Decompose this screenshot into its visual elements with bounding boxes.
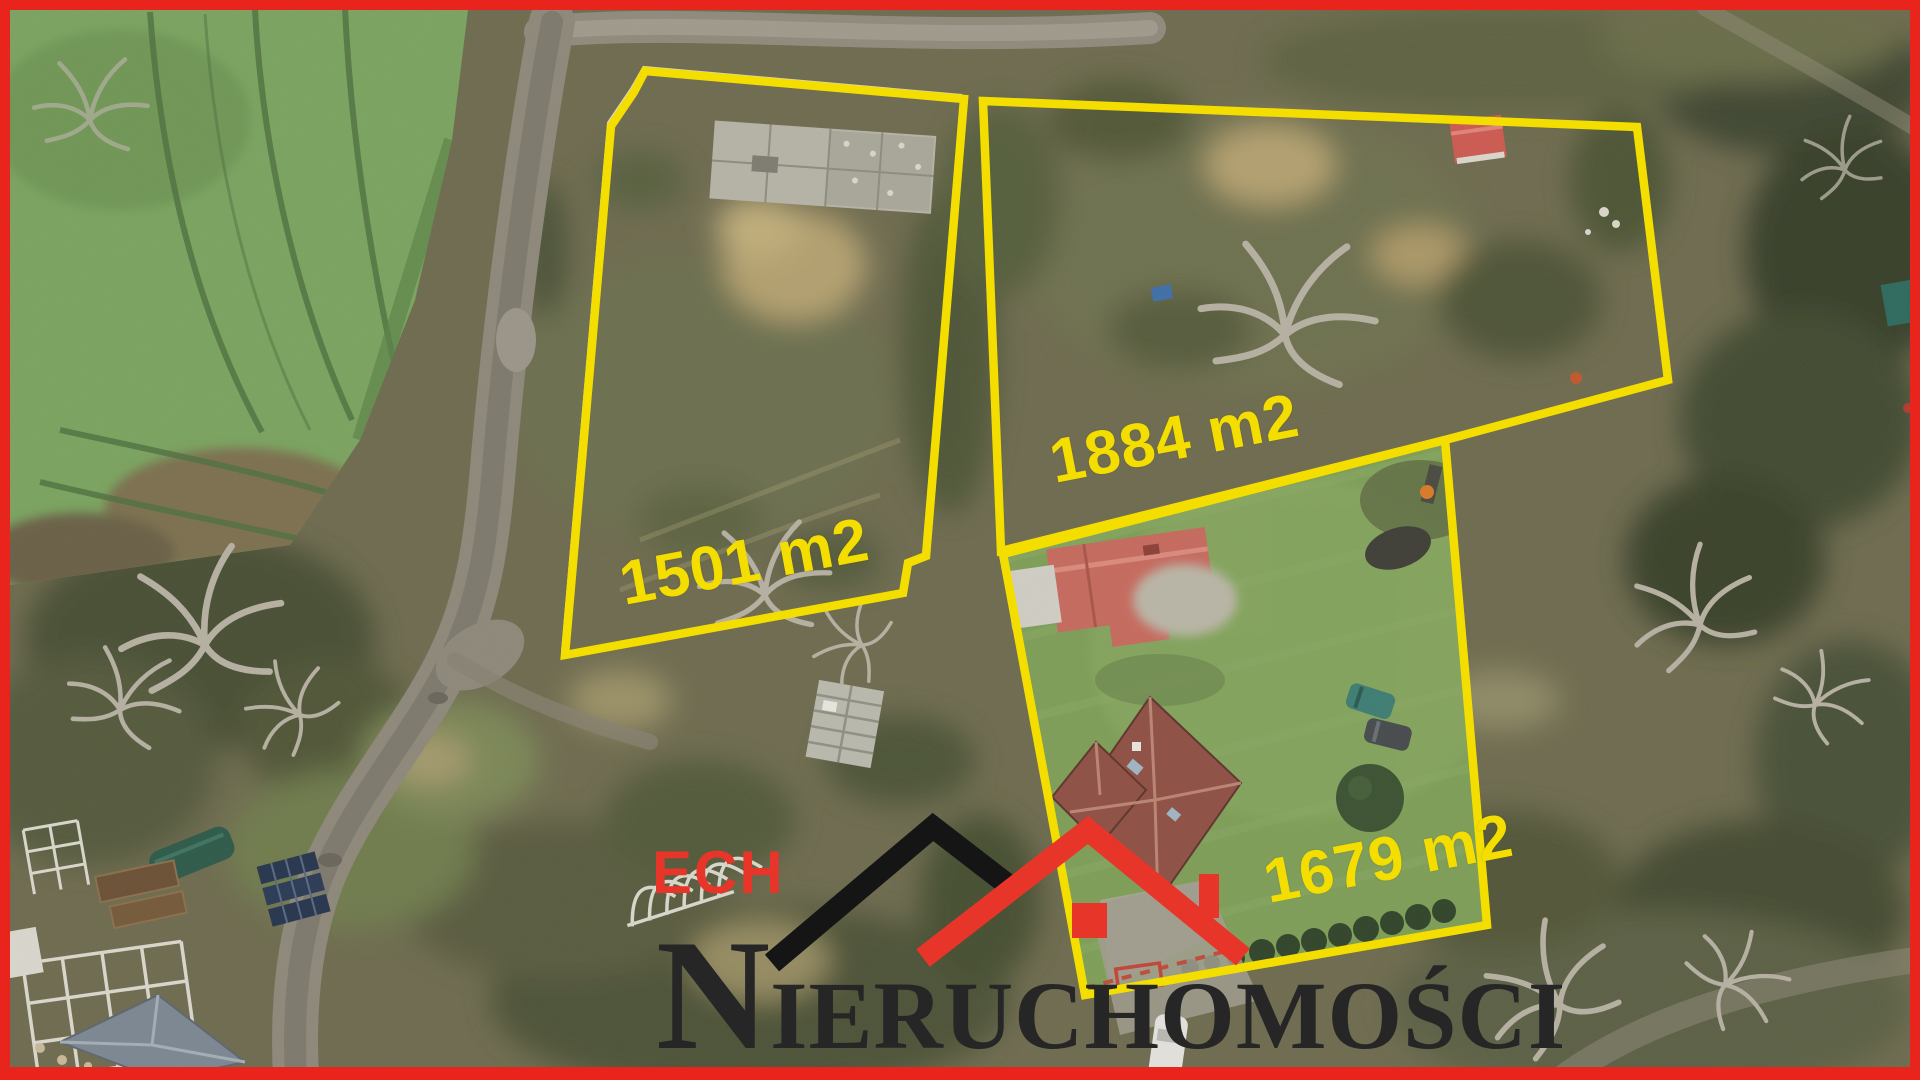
brand-rest: IERUCHOMOŚCI [770, 962, 1566, 1069]
brand-top: ECH [652, 843, 785, 903]
listing-photo: 1501 m2 1884 m2 1679 m2 ECH NIERUCHOMOŚC… [0, 0, 1920, 1080]
brand-name: NIERUCHOMOŚCI [656, 917, 1566, 1075]
brand-initial: N [656, 908, 770, 1080]
